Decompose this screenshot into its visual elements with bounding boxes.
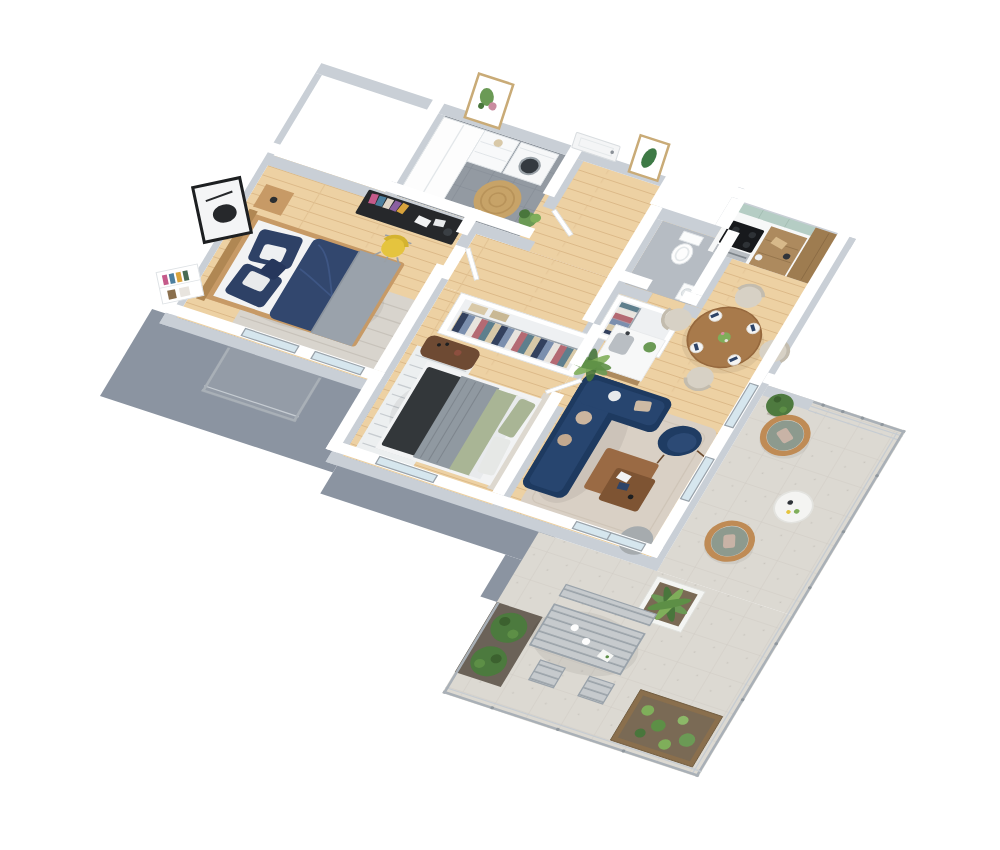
floorplan-render xyxy=(0,0,1000,850)
throw-pillow xyxy=(633,400,652,412)
floorplan-svg xyxy=(0,0,1000,850)
abstract-art-frame xyxy=(193,178,252,243)
